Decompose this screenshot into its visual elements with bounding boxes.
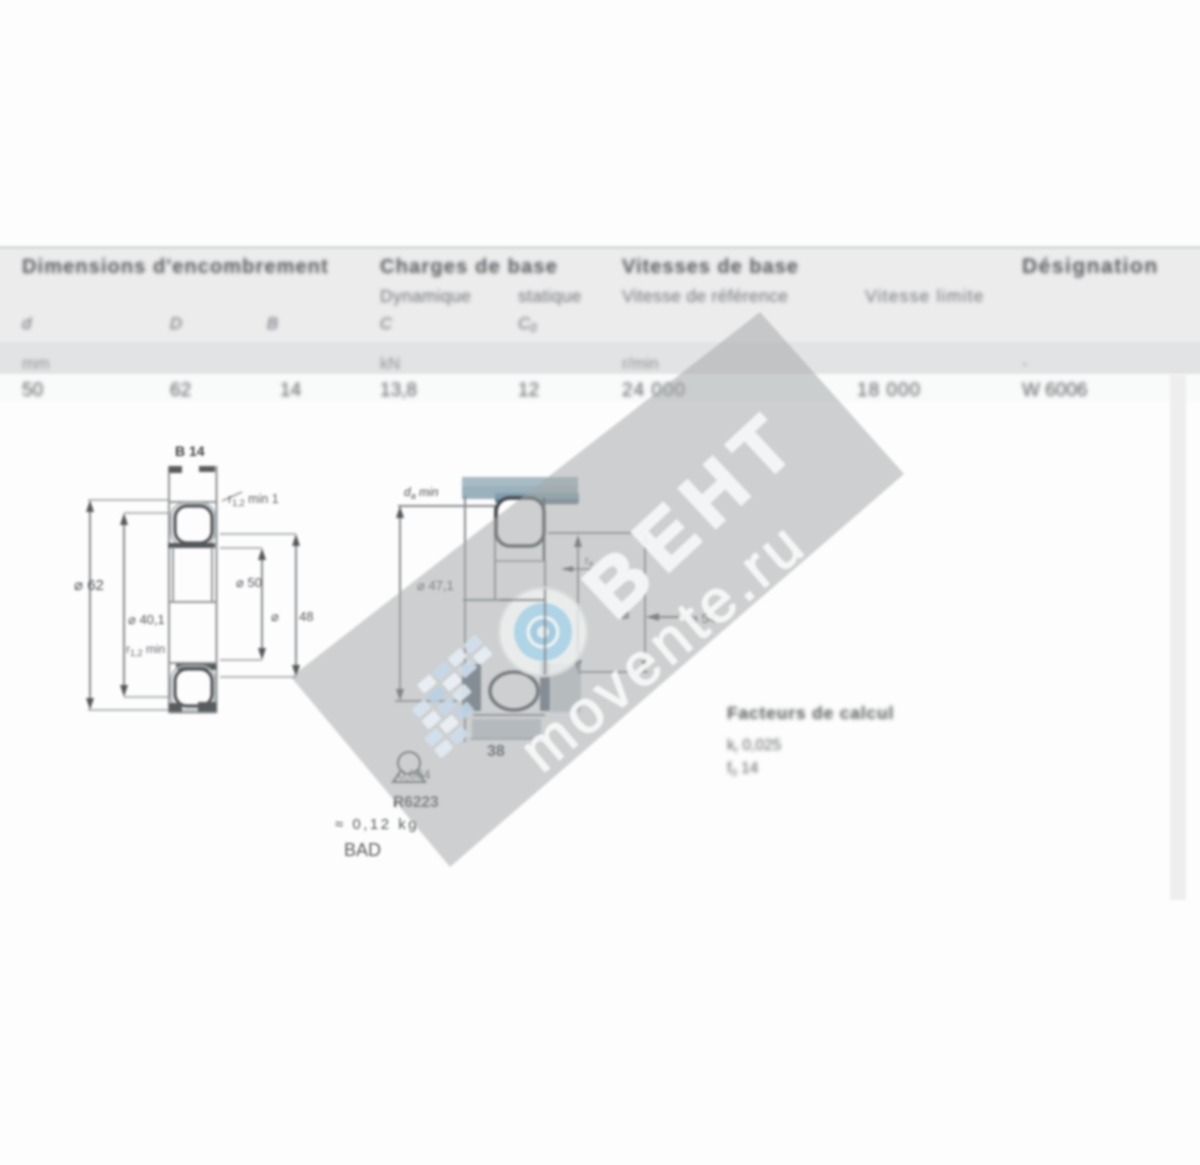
- svg-text:48: 48: [299, 609, 313, 624]
- svg-text:⌀: ⌀: [271, 609, 279, 624]
- svg-text:Dynamique: Dynamique: [380, 286, 471, 306]
- svg-text:D: D: [170, 315, 182, 333]
- svg-text:50: 50: [22, 380, 43, 401]
- svg-text:BAD: BAD: [344, 840, 381, 860]
- svg-text:Désignation: Désignation: [1022, 255, 1159, 278]
- svg-text:-: -: [1022, 355, 1028, 373]
- svg-text:⌀ 50: ⌀ 50: [236, 575, 262, 590]
- svg-text:kN: kN: [380, 355, 400, 373]
- svg-text:Vitesse de référence: Vitesse de référence: [622, 286, 788, 306]
- svg-text:B 14: B 14: [175, 443, 205, 459]
- svg-text:Vitesses de base: Vitesses de base: [622, 256, 799, 278]
- svg-text:C: C: [380, 315, 392, 333]
- svg-text:r1,2 min: r1,2 min: [126, 642, 165, 658]
- svg-text:mm: mm: [22, 355, 50, 373]
- svg-text:⌀ 40,1: ⌀ 40,1: [128, 612, 165, 627]
- svg-text:da min: da min: [404, 485, 439, 501]
- svg-text:Dimensions d'encombrement: Dimensions d'encombrement: [22, 256, 329, 278]
- svg-text:14: 14: [280, 380, 302, 401]
- svg-text:Facteurs de calcul: Facteurs de calcul: [727, 703, 894, 723]
- svg-text:≈ 0,12 kg: ≈ 0,12 kg: [335, 816, 419, 833]
- svg-text:18 000: 18 000: [857, 380, 921, 401]
- svg-text:Vitesse limite: Vitesse limite: [865, 286, 985, 306]
- svg-text:W 6006: W 6006: [1022, 380, 1087, 401]
- svg-text:⌀ 62: ⌀ 62: [74, 577, 104, 594]
- svg-text:d: d: [22, 315, 32, 333]
- svg-text:kr 0,025: kr 0,025: [727, 737, 781, 756]
- svg-text:r/min: r/min: [622, 355, 659, 373]
- svg-text:B: B: [267, 315, 278, 333]
- svg-text:f0 14: f0 14: [727, 760, 759, 779]
- svg-text:13,8: 13,8: [380, 380, 417, 401]
- svg-text:12: 12: [518, 380, 539, 401]
- svg-text:statique: statique: [518, 286, 582, 306]
- svg-text:Charges de base: Charges de base: [380, 256, 558, 278]
- svg-text:62: 62: [170, 380, 191, 401]
